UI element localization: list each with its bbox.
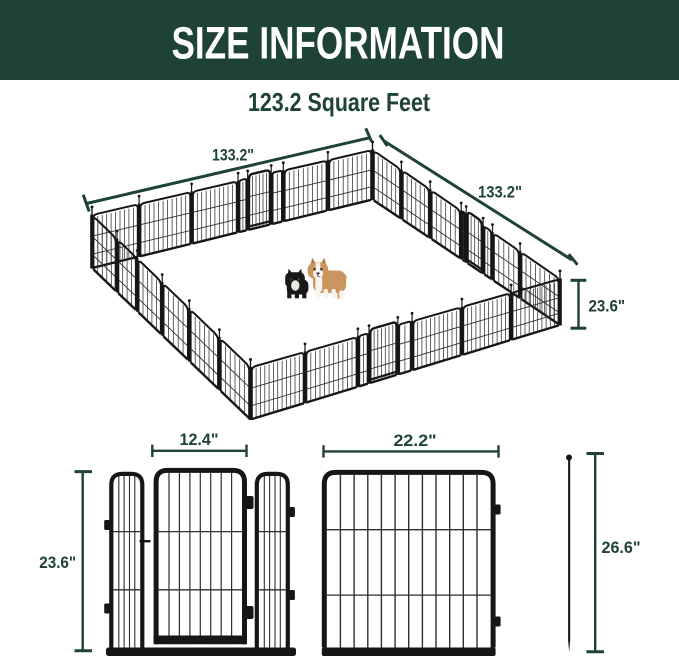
svg-text:133.2": 133.2"	[478, 183, 522, 202]
svg-text:SIZE INFORMATION: SIZE INFORMATION	[172, 18, 505, 69]
svg-text:23.6": 23.6"	[589, 297, 626, 316]
svg-text:22.2": 22.2"	[394, 431, 437, 450]
svg-text:23.6": 23.6"	[39, 553, 76, 572]
svg-text:133.2": 133.2"	[212, 145, 254, 164]
svg-text:12.4": 12.4"	[180, 430, 219, 449]
svg-text:123.2 Square Feet: 123.2 Square Feet	[248, 87, 430, 117]
svg-text:26.6": 26.6"	[602, 538, 641, 557]
